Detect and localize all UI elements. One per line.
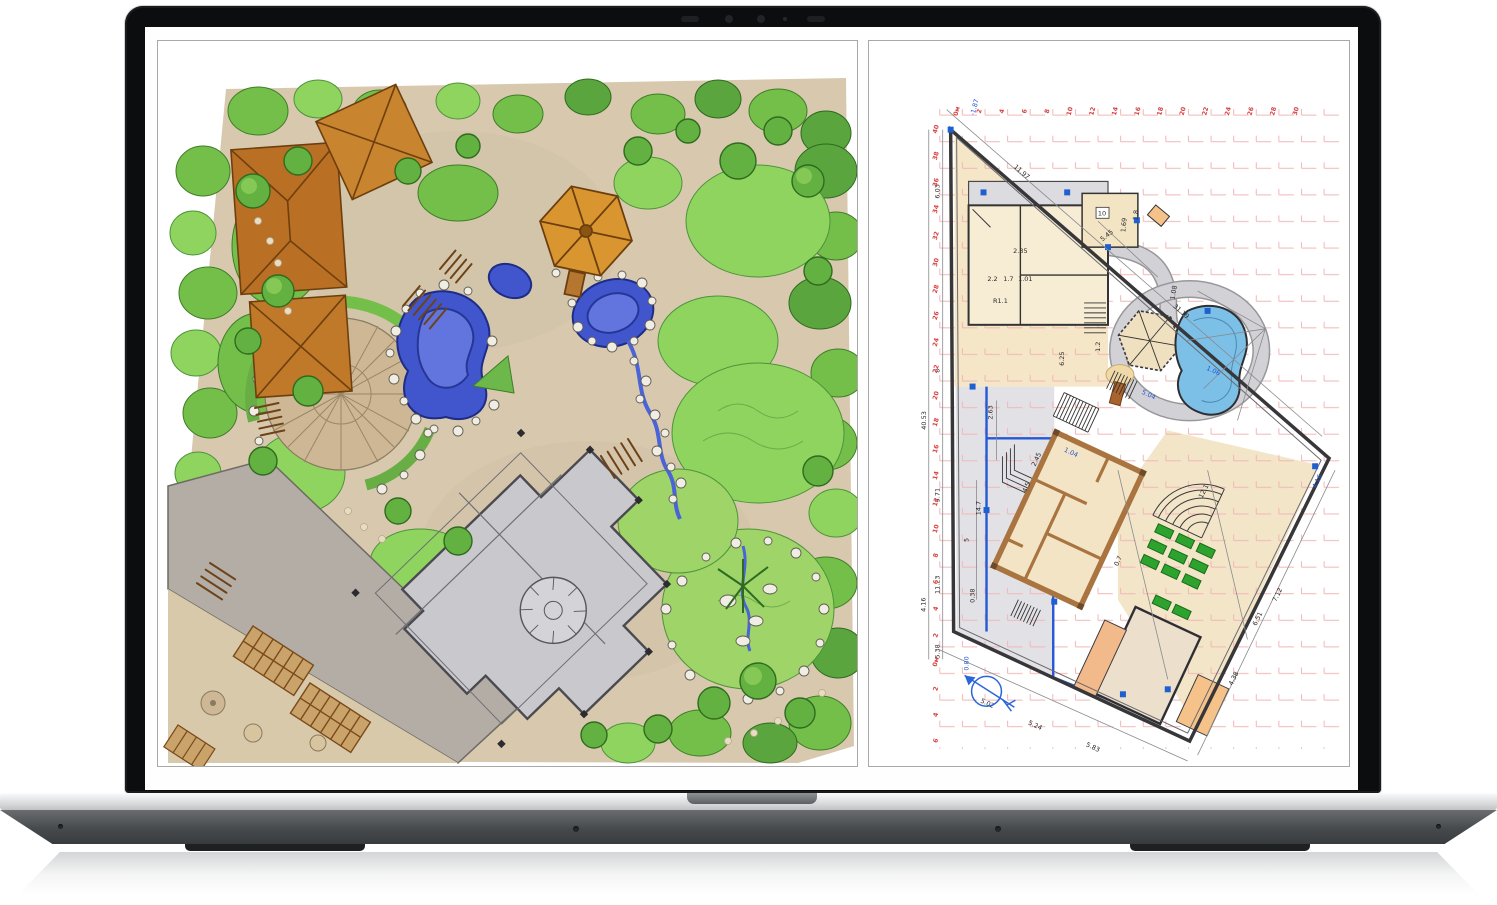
- rubber-foot: [185, 844, 365, 851]
- landscape-plan-drawing: [158, 41, 857, 766]
- page-background: 10: [0, 0, 1497, 905]
- ir-emitter-icon: [681, 16, 699, 22]
- dim-label: 5.38: [934, 644, 942, 658]
- screw-icon: [58, 824, 63, 829]
- dim-label: 2.63: [986, 405, 994, 419]
- webcam-icon: [725, 15, 733, 23]
- landscape-plan-panel: [157, 40, 858, 767]
- dim-label: 0.38: [969, 588, 977, 602]
- dim-label: 5: [963, 538, 971, 542]
- dim-label: 14.7: [975, 501, 983, 515]
- laptop-base: [0, 810, 1497, 844]
- dim-label: 1.69: [1119, 218, 1128, 233]
- rubber-foot: [1130, 844, 1310, 851]
- screw-icon: [1436, 824, 1441, 829]
- dim-label: 1.7: [1003, 275, 1013, 283]
- laptop-reflection: [8, 852, 1489, 905]
- dim-label: 40.53: [920, 411, 928, 430]
- elevation-label: 0.80: [963, 656, 971, 670]
- camera-array: [667, 15, 839, 23]
- dim-label: 4.16: [920, 597, 928, 611]
- camera-led-icon: [783, 17, 787, 21]
- ir-emitter-icon: [807, 16, 825, 22]
- dim-label: 1.01: [1018, 275, 1032, 283]
- screw-icon: [995, 826, 1001, 832]
- lid-notch: [687, 793, 817, 804]
- room-number-label: 10: [1098, 209, 1106, 217]
- cad-site-plan-panel: 10: [868, 40, 1350, 767]
- ambient-light-sensor-icon: [757, 15, 765, 23]
- dim-label: R1.1: [993, 297, 1008, 305]
- dim-label: 2.2: [987, 275, 997, 283]
- dim-label: 2.35: [1013, 247, 1027, 255]
- pool: [1175, 306, 1246, 415]
- screw-icon: [573, 826, 579, 832]
- dim-label: 1.2: [1094, 342, 1102, 352]
- dim-label: 6.25: [1058, 351, 1066, 365]
- laptop-deck-edge: [0, 793, 1497, 810]
- laptop-lid: 10: [125, 6, 1381, 793]
- cad-site-plan-drawing: 10: [869, 41, 1349, 766]
- laptop-screen: 10: [145, 27, 1358, 790]
- dim-label: 1.8: [1131, 210, 1140, 221]
